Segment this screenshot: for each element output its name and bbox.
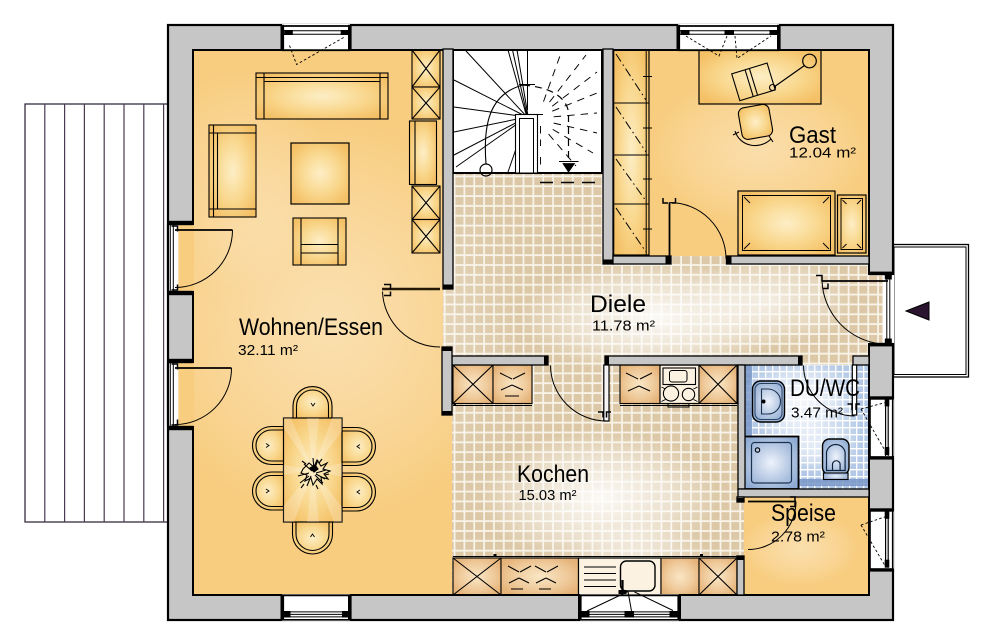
- svg-text:12.04 m²: 12.04 m²: [789, 146, 856, 162]
- svg-text:Diele: Diele: [590, 291, 646, 318]
- svg-text:2.78 m²: 2.78 m²: [771, 530, 825, 546]
- svg-text:DU/WC: DU/WC: [790, 375, 860, 402]
- svg-text:32.11 m²: 32.11 m²: [238, 343, 298, 359]
- svg-text:15.03 m²: 15.03 m²: [519, 488, 577, 504]
- svg-text:11.78 m²: 11.78 m²: [592, 319, 655, 335]
- svg-text:Wohnen/Essen: Wohnen/Essen: [239, 314, 383, 341]
- svg-text:3.47 m²: 3.47 m²: [791, 406, 843, 422]
- svg-text:Kochen: Kochen: [517, 461, 589, 488]
- svg-text:Speise: Speise: [771, 500, 836, 527]
